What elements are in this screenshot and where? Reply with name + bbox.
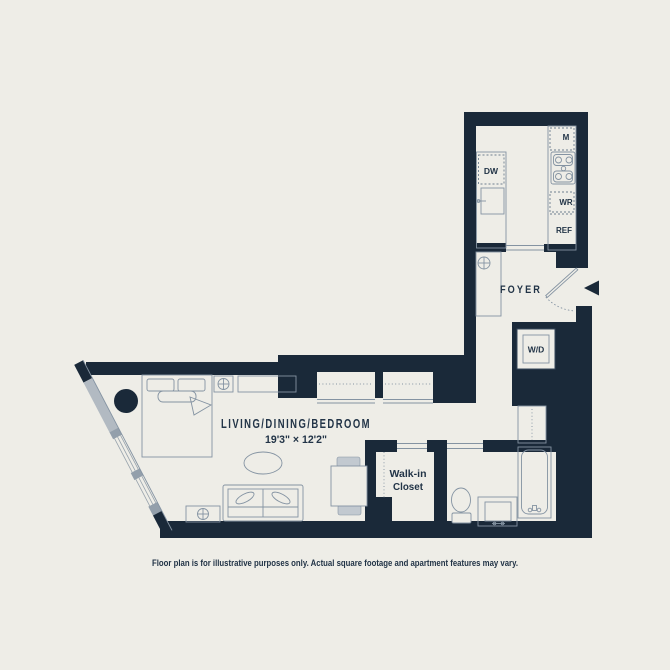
floor-plan-image: DW M WR REF FOYER W/D	[0, 0, 670, 670]
wine-refrigerator-label: WR	[559, 198, 573, 207]
foyer-closet	[476, 252, 501, 316]
window-inner-face-line	[83, 360, 172, 530]
wing-top-wall-c	[483, 440, 556, 452]
range-stove	[551, 152, 575, 184]
bathroom	[452, 447, 552, 526]
closet-jamb-right	[433, 372, 476, 403]
dishwasher-label: DW	[484, 166, 499, 176]
bathtub	[518, 447, 551, 518]
toilet	[452, 488, 472, 523]
entry-arrow-icon	[584, 281, 599, 296]
window-mullion	[131, 468, 144, 480]
kitchen-corner-block	[556, 244, 588, 268]
walk-in-closet: Walk-in Closet	[384, 452, 427, 498]
closet-corner-column	[372, 497, 392, 524]
living-room-dimensions: 19'3" × 12'2"	[265, 434, 327, 446]
kitchen-return-left	[476, 243, 506, 252]
bed-throw	[190, 397, 211, 415]
foyer-label: FOYER	[500, 284, 542, 296]
dining-set	[331, 457, 367, 515]
living-room: LIVING/DINING/BEDROOM 19'3" × 12'2"	[142, 375, 371, 522]
sofa	[223, 485, 303, 521]
refrigerator-label: REF	[556, 226, 572, 235]
kitchen: DW M WR REF	[477, 126, 577, 250]
sofa-pillow-right	[270, 490, 291, 506]
wd-right-wall	[554, 322, 592, 374]
closet-jamb-middle	[375, 372, 383, 398]
light-fixture-icon	[478, 257, 490, 269]
disclaimer-caption: Floor plan is for illustrative purposes …	[152, 558, 518, 569]
floor-plan-page: DW M WR REF FOYER W/D	[0, 0, 670, 670]
tub-faucet-icon	[533, 506, 537, 511]
linen-right-wall	[546, 374, 592, 448]
window-band	[83, 378, 118, 432]
structural-column	[114, 389, 138, 413]
dining-chair-top	[337, 457, 360, 467]
walk-in-closet-label-1: Walk-in	[390, 468, 427, 480]
entry-door-swing-arc	[546, 297, 574, 311]
sofa-pillow-left	[234, 490, 255, 506]
window-glazing-1	[115, 435, 139, 472]
washer-dryer-label: W/D	[528, 345, 545, 355]
rug-oval	[244, 452, 282, 474]
bed-pillow-left	[147, 379, 174, 391]
microwave-label: M	[563, 133, 570, 142]
south-wall	[160, 521, 592, 538]
linen-closet	[518, 406, 546, 443]
entry-door-leaf	[546, 268, 578, 297]
dining-table	[331, 466, 367, 506]
kitchen-top-wall	[464, 112, 588, 126]
lamp-icon	[218, 379, 229, 390]
living-north-wall	[86, 362, 278, 375]
dining-chair-bottom	[338, 505, 361, 515]
bed	[142, 375, 212, 457]
lamp-icon	[198, 509, 209, 520]
closet-bath-divider-wall	[434, 440, 447, 528]
kitchen-left-wall	[464, 112, 476, 362]
closet-header-wall	[278, 355, 476, 372]
window-wall	[74, 360, 173, 537]
living-room-label: LIVING/DINING/BEDROOM	[221, 416, 371, 431]
walk-in-closet-label-2: Closet	[393, 481, 423, 493]
bed-pillow-right	[178, 379, 205, 391]
